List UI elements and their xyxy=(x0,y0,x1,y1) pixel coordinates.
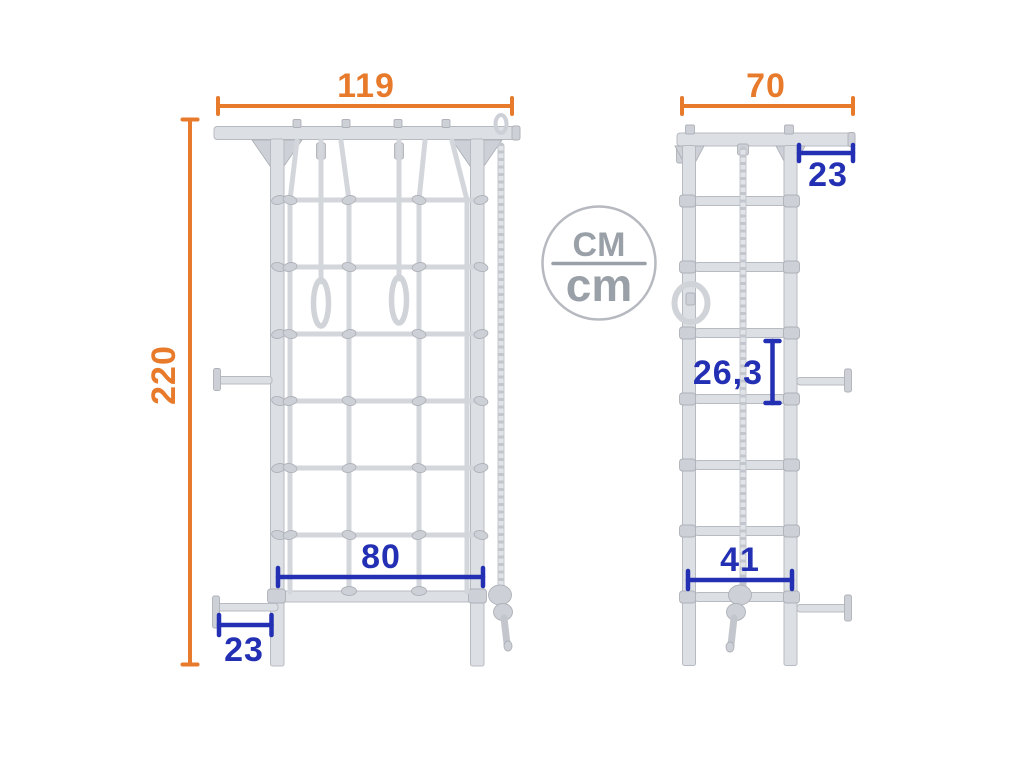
rope-end xyxy=(504,641,512,651)
rung-collar xyxy=(784,261,800,273)
dim-side-depth: 70 xyxy=(682,67,853,114)
side-wall-offset-label: 23 xyxy=(808,156,848,194)
rung-collar xyxy=(784,591,800,603)
net-knot xyxy=(282,261,298,273)
net-knot xyxy=(341,529,357,541)
rung-collar xyxy=(680,261,696,273)
rung-collar xyxy=(680,195,696,207)
front-width-label: 119 xyxy=(337,67,395,105)
mount-tab xyxy=(293,120,301,128)
bracket-arm xyxy=(797,378,847,386)
net-rope-vertical xyxy=(452,141,467,592)
front-top-bar xyxy=(214,127,520,140)
rung-collar xyxy=(784,525,800,537)
dim-front-height: 220 xyxy=(145,120,198,665)
diagram-canvas: 119 220 80 23 CM cm xyxy=(0,0,1024,768)
net-knot xyxy=(411,529,427,541)
front-height-label: 220 xyxy=(145,345,183,405)
rung-collar xyxy=(680,525,696,537)
rope-knot xyxy=(489,585,512,605)
hanging-rope-loops xyxy=(314,141,407,326)
mount-tab xyxy=(394,120,402,128)
bracket-arm xyxy=(797,605,847,613)
climbing-rope-front xyxy=(489,115,513,651)
net-rope-vertical xyxy=(341,141,349,592)
net-knot xyxy=(341,462,357,474)
front-view: 119 220 80 23 xyxy=(145,67,520,669)
net-knot xyxy=(341,261,357,273)
side-depth-label: 70 xyxy=(746,67,786,105)
ring-connector xyxy=(686,293,695,305)
bracket-flange xyxy=(845,595,852,621)
wall-bracket-side-lower xyxy=(797,595,852,621)
rung-collar xyxy=(680,393,696,405)
side-view: 70 23 26,3 41 xyxy=(675,67,856,666)
bracket-flange xyxy=(845,369,852,392)
rung-collar xyxy=(784,327,800,339)
front-net xyxy=(279,141,481,592)
net-rope-vertical xyxy=(419,141,425,592)
dim-side-rung-spacing: 26,3 xyxy=(693,341,780,403)
diagram-page: 119 220 80 23 CM cm xyxy=(0,0,1024,768)
net-knot xyxy=(411,395,427,407)
side-inner-depth-label: 41 xyxy=(720,541,760,579)
mount-tab xyxy=(442,120,450,128)
net-knot xyxy=(411,194,427,206)
rope-tail xyxy=(504,618,507,644)
rung-collar xyxy=(680,591,696,603)
net-knot xyxy=(341,328,357,340)
side-top-bar xyxy=(677,133,855,146)
dim-front-width: 119 xyxy=(218,67,512,114)
mount-tab xyxy=(686,125,695,134)
rope-knot xyxy=(729,585,752,605)
side-rung-spacing-label: 26,3 xyxy=(693,354,763,392)
rung-collar xyxy=(680,327,696,339)
rung-collar xyxy=(784,195,800,207)
net-knot xyxy=(341,194,357,206)
wall-bracket-side-upper xyxy=(797,369,852,392)
rope-loop xyxy=(392,277,407,323)
bracket-flange xyxy=(214,369,221,391)
net-knot xyxy=(341,395,357,407)
dim-front-inner-width: 80 xyxy=(278,538,483,586)
net-knot xyxy=(411,261,427,273)
net-knot xyxy=(282,395,298,407)
bracket-arm xyxy=(217,604,278,612)
rung-collar xyxy=(784,393,800,405)
front-bottom-bar xyxy=(276,591,480,602)
bracket-arm xyxy=(218,377,272,385)
rope-end xyxy=(726,642,734,652)
net-knot xyxy=(411,328,427,340)
dim-front-bracket-offset: 23 xyxy=(219,615,272,669)
net-knot xyxy=(412,587,427,596)
net-knot xyxy=(342,587,357,596)
rung-collar xyxy=(784,459,800,471)
rope-tail xyxy=(731,618,734,645)
net-rope-vertical xyxy=(290,141,297,592)
rope-loop xyxy=(314,280,329,326)
dim-side-inner-depth: 41 xyxy=(688,541,792,589)
front-inner-width-label: 80 xyxy=(361,538,401,576)
unit-badge: CM cm xyxy=(543,207,656,320)
front-bracket-offset-label: 23 xyxy=(224,631,264,669)
mount-tab xyxy=(785,125,794,134)
unit-denominator: cm xyxy=(566,259,632,311)
dim-side-wall-offset: 23 xyxy=(799,145,853,194)
bottom-bar-collar xyxy=(268,589,286,603)
wall-bracket-front-upper xyxy=(214,369,273,391)
bar-end-cap xyxy=(512,126,520,140)
net-knot xyxy=(282,529,298,541)
net-knot xyxy=(411,462,427,474)
mount-tab xyxy=(342,120,350,128)
bottom-bar-collar xyxy=(469,589,487,603)
rung-collar xyxy=(680,459,696,471)
